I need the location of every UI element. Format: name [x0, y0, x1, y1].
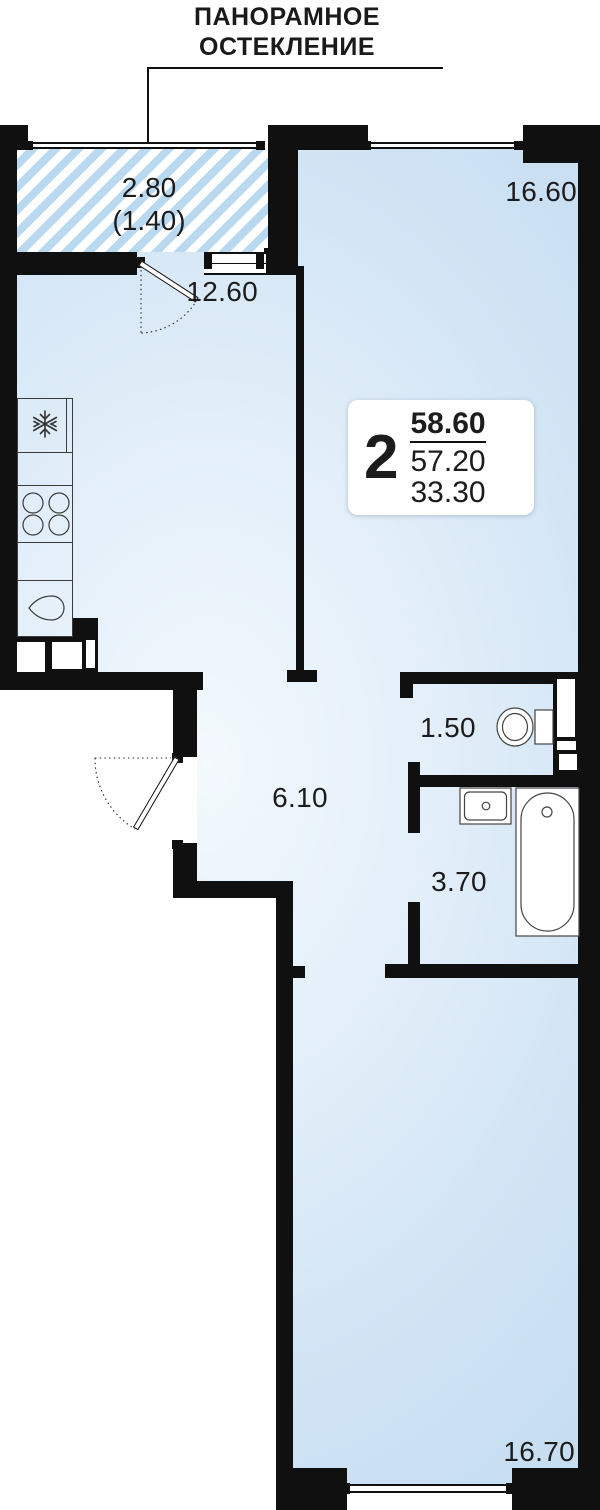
window-cap — [24, 141, 33, 150]
kitchen-area-label: 12.60 — [158, 276, 258, 308]
door-hinge — [172, 840, 183, 849]
wall-bottom-left-pier — [276, 1468, 347, 1510]
wc-area-label: 1.50 — [398, 712, 498, 744]
window-cap — [514, 141, 523, 150]
counter-divider — [18, 580, 72, 581]
balcony-area-reduced: (1.40) — [59, 204, 239, 237]
bedroom-window — [368, 142, 518, 149]
counter-divider — [18, 452, 72, 453]
wall-entry-jamb-upper — [173, 690, 197, 757]
kitchen-counter — [17, 398, 73, 637]
wall-bath-left — [408, 902, 420, 970]
annotation-line-1: ПАНОРАМНОЕ — [122, 2, 452, 32]
fridge-door-line — [66, 399, 67, 452]
window-cap — [204, 254, 212, 269]
window-cap — [362, 141, 371, 150]
bedroom-area-label: 16.60 — [477, 176, 577, 208]
window-cap — [338, 1483, 350, 1494]
living-room-window — [345, 1484, 513, 1493]
wall-wc-top — [400, 672, 557, 684]
living-room-area-label: 16.70 — [475, 1436, 575, 1468]
annotation-line-2: ОСТЕКЛЕНИЕ — [122, 32, 452, 62]
entry-niche — [86, 640, 95, 668]
window-cap — [256, 141, 265, 150]
bathroom-area-label: 3.70 — [409, 866, 509, 898]
wall-living-left — [276, 881, 293, 1510]
floor-plan: ПАНОРАМНОЕ ОСТЕКЛЕНИЕ 2.80 (1.40) 12.60 … — [0, 0, 600, 1510]
wall-hall-bottom — [173, 881, 293, 898]
vent-shaft — [557, 741, 576, 750]
wall-bottom-right-pier — [512, 1468, 600, 1510]
wall-left — [0, 125, 17, 690]
wall-bath-bottom — [385, 964, 580, 978]
wall-bedroom-divider-cap — [287, 670, 317, 682]
wall-entry-top — [98, 672, 203, 690]
wall-living-stub — [293, 966, 305, 978]
vent-shaft — [559, 754, 577, 770]
area-without-balcony: 57.20 — [410, 446, 485, 477]
counter-divider — [18, 542, 72, 543]
balcony-area: 2.80 — [59, 171, 239, 204]
outside-area — [0, 690, 197, 900]
rooms-count: 2 — [364, 427, 397, 489]
wall-wc-bath-divider — [413, 775, 557, 787]
outside-area — [0, 898, 276, 1510]
wall-wc-left — [408, 762, 420, 833]
window-cap — [506, 1483, 518, 1494]
hallway-area-label: 6.10 — [250, 782, 350, 814]
wall-bedroom-divider — [296, 266, 304, 672]
apartment-info-card: 2 58.60 57.20 33.30 — [348, 400, 534, 515]
entry-niche — [52, 642, 82, 669]
total-area: 58.60 — [410, 408, 485, 443]
vent-shaft — [557, 679, 575, 737]
living-area: 33.30 — [410, 477, 485, 508]
wall-kitchen-window-pier — [264, 248, 298, 275]
panoramic-glazing-annotation: ПАНОРАМНОЕ ОСТЕКЛЕНИЕ — [122, 2, 452, 62]
wall-balcony-bottom — [17, 252, 137, 275]
counter-divider — [18, 485, 72, 486]
wall-counter-stub — [73, 618, 98, 637]
wall-kitchen-bottom — [0, 637, 98, 690]
wall-right — [578, 125, 600, 1510]
window-cap — [256, 254, 264, 269]
wall-top-mid — [268, 125, 368, 150]
entry-niche — [17, 642, 45, 672]
balcony-area-label: 2.80 (1.40) — [59, 171, 239, 237]
panoramic-window — [28, 142, 262, 149]
wall-wc-top-cap — [400, 672, 413, 698]
